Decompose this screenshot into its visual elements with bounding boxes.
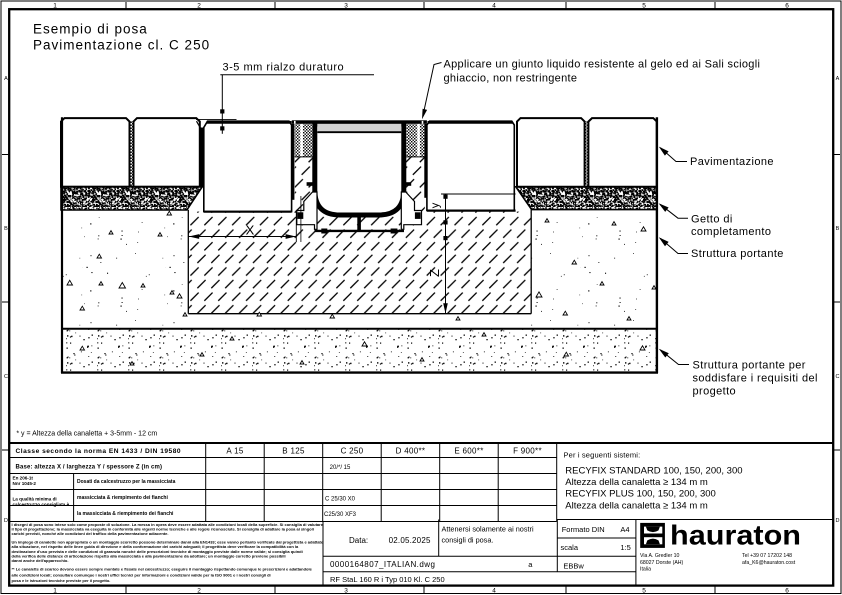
svg-text:completamento: completamento [691,226,771,238]
svg-text:Dosati da calcestruzzo per la: Dosati da calcestruzzo per la massicciat… [77,479,176,485]
svg-text:En 206-1t: En 206-1t [13,476,34,481]
svg-text:carichi previsti, nonché alle: carichi previsti, nonché alle condizioni… [12,531,169,536]
svg-text:La qualità minima di: La qualità minima di [13,497,57,502]
svg-text:Nnr 1045-2: Nnr 1045-2 [13,481,37,486]
svg-text:Esempio di posa: Esempio di posa [33,22,148,37]
svg-text:A 15: A 15 [226,447,243,456]
svg-text:5: 5 [642,588,646,595]
svg-text:massicciata & riempimento dei: massicciata & riempimento dei fianchi [77,495,168,501]
svg-text:Pavimentazione cl. C 250: Pavimentazione cl. C 250 [33,38,210,53]
svg-text:68027 Dorste (AH): 68027 Dorste (AH) [640,560,684,566]
svg-text:Tel +39 07 17202 148: Tel +39 07 17202 148 [742,553,792,559]
svg-text:calcestruzzo consigliata è: calcestruzzo consigliata è [13,502,70,507]
svg-text:F 900**: F 900** [513,447,542,456]
svg-text:RF StaL 160 R i Typ 010 Kl. C: RF StaL 160 R i Typ 010 Kl. C 250 [330,575,445,584]
svg-text:consigli di posa.: consigli di posa. [442,536,494,545]
svg-text:Altezza della canaletta ≥ 134: Altezza della canaletta ≥ 134 m m [565,501,708,512]
svg-text:A: A [4,76,8,82]
svg-text:D: D [836,518,840,524]
svg-text:RECYFIX STANDARD 100, 150, 200: RECYFIX STANDARD 100, 150, 200, 300 [565,466,742,477]
svg-text:B: B [4,226,8,232]
svg-text:Via A. Gredler 10: Via A. Gredler 10 [640,553,680,559]
svg-text:0000164807_ITALIAN.dwg: 0000164807_ITALIAN.dwg [330,560,435,569]
svg-text:6: 6 [785,588,789,595]
svg-text:hauraton: hauraton [670,520,801,551]
svg-text:ghiaccio, non restringente: ghiaccio, non restringente [444,73,578,85]
svg-text:3-5 mm rialzo duraturo: 3-5 mm rialzo duraturo [223,62,345,74]
svg-text:6: 6 [785,2,789,9]
svg-text:y: y [430,202,442,208]
svg-text:E 600**: E 600** [454,447,483,456]
svg-text:Struttura portante: Struttura portante [691,248,784,260]
svg-text:Attenersi solamente ai nostri: Attenersi solamente ai nostri [442,525,534,534]
svg-text:Base: altezza X / larghezza Y: Base: altezza X / larghezza Y / spessore… [16,464,163,470]
svg-text:2: 2 [197,2,201,9]
svg-text:D: D [4,518,8,524]
svg-text:Formato DIN: Formato DIN [562,525,605,534]
svg-text:C: C [836,374,840,380]
svg-text:danni anche dell'apparecchio.: danni anche dell'apparecchio. [12,558,69,563]
svg-text:02.05.2025: 02.05.2025 [389,536,431,545]
svg-text:D 400**: D 400** [396,447,426,456]
svg-text:la massicciata & riempimento d: la massicciata & riempimento dei fianchi [77,511,174,517]
svg-text:Data:: Data: [349,536,368,545]
svg-text:C 250: C 250 [341,447,364,456]
svg-text:posa e le istruzioni tecniche: posa e le istruzioni tecniche previste p… [12,578,111,583]
svg-text:soddisfare i requisiti del: soddisfare i requisiti del [693,373,818,385]
svg-text:3: 3 [344,2,348,9]
svg-text:20/*/ 15: 20/*/ 15 [330,465,351,471]
svg-text:B 125: B 125 [282,447,305,456]
svg-text:scala: scala [561,543,579,552]
svg-text:Altezza della canaletta ≥ 134: Altezza della canaletta ≥ 134 m m [565,477,708,488]
svg-text:RECYFIX PLUS 100, 150, 200, 30: RECYFIX PLUS 100, 150, 200, 300 [565,489,716,500]
svg-text:B: B [836,226,840,232]
svg-text:Pavimentazione: Pavimentazione [690,156,774,168]
svg-text:A: A [836,76,840,82]
svg-text:1: 1 [53,2,57,9]
svg-text:4: 4 [492,588,496,595]
svg-text:Italia: Italia [640,566,651,572]
svg-text:C: C [4,374,8,380]
svg-text:progetto: progetto [693,386,737,398]
svg-text:EBBw: EBBw [563,561,584,570]
svg-text:Per i seguenti sistemi:: Per i seguenti sistemi: [564,451,641,460]
svg-text:alle condizioni locali; consul: alle condizioni locali; consultare comun… [12,573,271,578]
svg-text:A4: A4 [620,525,629,534]
svg-text:1: 1 [53,588,57,595]
svg-text:Z: Z [427,269,442,277]
svg-text:2: 2 [197,588,201,595]
svg-text:* y = Altezza della canaletta: * y = Altezza della canaletta + 3-5mm - … [16,431,157,438]
svg-text:afa_K6@hauraton.cost: afa_K6@hauraton.cost [742,560,796,566]
svg-text:1:5: 1:5 [620,543,630,552]
svg-text:C25/30 XF3: C25/30 XF3 [324,512,357,518]
svg-text:X: X [246,223,255,238]
svg-text:Applicare un giunto liquido re: Applicare un giunto liquido resistente a… [444,59,761,71]
svg-text:C 25/30 X0: C 25/30 X0 [325,497,356,503]
svg-text:5: 5 [642,2,646,9]
svg-text:Struttura portante per: Struttura portante per [693,360,806,372]
svg-text:Getto di: Getto di [691,214,733,226]
svg-text:4: 4 [492,2,496,9]
svg-text:Classe secondo la norma EN 143: Classe secondo la norma EN 1433 / DIN 19… [16,448,182,455]
svg-text:3: 3 [344,588,348,595]
svg-text:** Le canalette di scarico dev: ** Le canalette di scarico devono essere… [12,567,313,572]
